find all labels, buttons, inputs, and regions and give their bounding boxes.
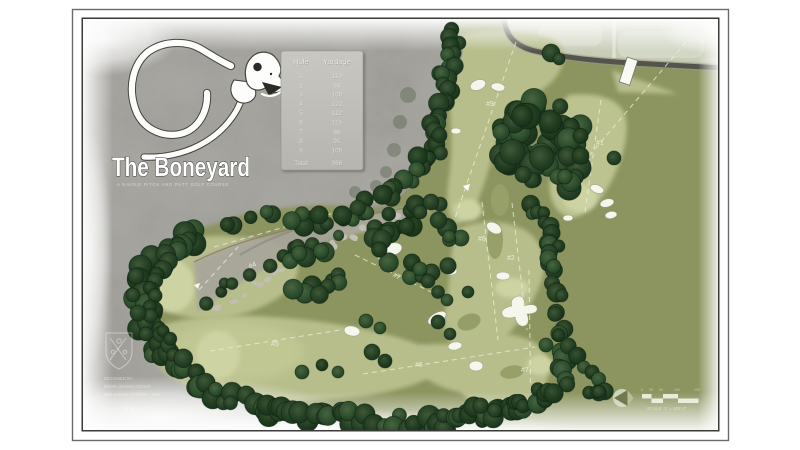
svg-text:119: 119 [332,73,343,80]
svg-text:105: 105 [332,147,343,154]
svg-text:#1: #1 [596,140,604,147]
svg-text:112: 112 [332,110,343,117]
svg-text:Total: Total [294,160,308,167]
svg-text:0: 0 [641,388,643,392]
svg-text:DESIGNED BY: DESIGNED BY [104,376,133,381]
svg-text:ROWE DESIGN GROUP: ROWE DESIGN GROUP [104,384,151,389]
svg-text:Yardage: Yardage [323,57,351,66]
svg-text:94: 94 [333,82,341,89]
svg-text:7: 7 [299,129,303,136]
svg-text:Chris M Rowe: Chris M Rowe [102,403,149,414]
svg-text:#2: #2 [507,255,515,262]
svg-text:100: 100 [674,388,680,392]
svg-text:200: 200 [694,388,700,392]
svg-text:PAR 3 GOLF COURSE - 2023: PAR 3 GOLF COURSE - 2023 [104,392,161,397]
svg-text:50: 50 [659,388,663,392]
svg-text:25: 25 [649,388,653,392]
svg-text:A 9-HOLE PITCH AND PUTT GOLF C: A 9-HOLE PITCH AND PUTT GOLF COURSE [117,182,229,187]
svg-text:91: 91 [333,138,341,145]
svg-text:122: 122 [332,101,343,108]
svg-text:#5: #5 [271,341,279,348]
svg-text:Hole: Hole [293,57,308,66]
svg-text:115: 115 [332,120,343,127]
svg-text:SCALE: 1" = 100'-0": SCALE: 1" = 100'-0" [647,406,687,411]
svg-text:#9: #9 [486,101,494,108]
svg-text:4: 4 [299,101,303,108]
svg-text:966: 966 [332,160,343,167]
svg-text:The Boneyard: The Boneyard [112,152,250,182]
svg-text:#8: #8 [478,236,486,243]
svg-text:6: 6 [299,120,303,127]
svg-text:5: 5 [299,110,303,117]
svg-text:#6: #6 [415,362,423,369]
svg-text:2: 2 [299,82,303,89]
svg-text:100: 100 [332,92,343,99]
svg-text:#7: #7 [521,367,529,374]
svg-text:9: 9 [299,147,303,154]
svg-text:8: 8 [299,138,303,145]
svg-text:1: 1 [299,73,303,80]
svg-text:88: 88 [333,129,341,136]
svg-text:3: 3 [299,92,303,99]
